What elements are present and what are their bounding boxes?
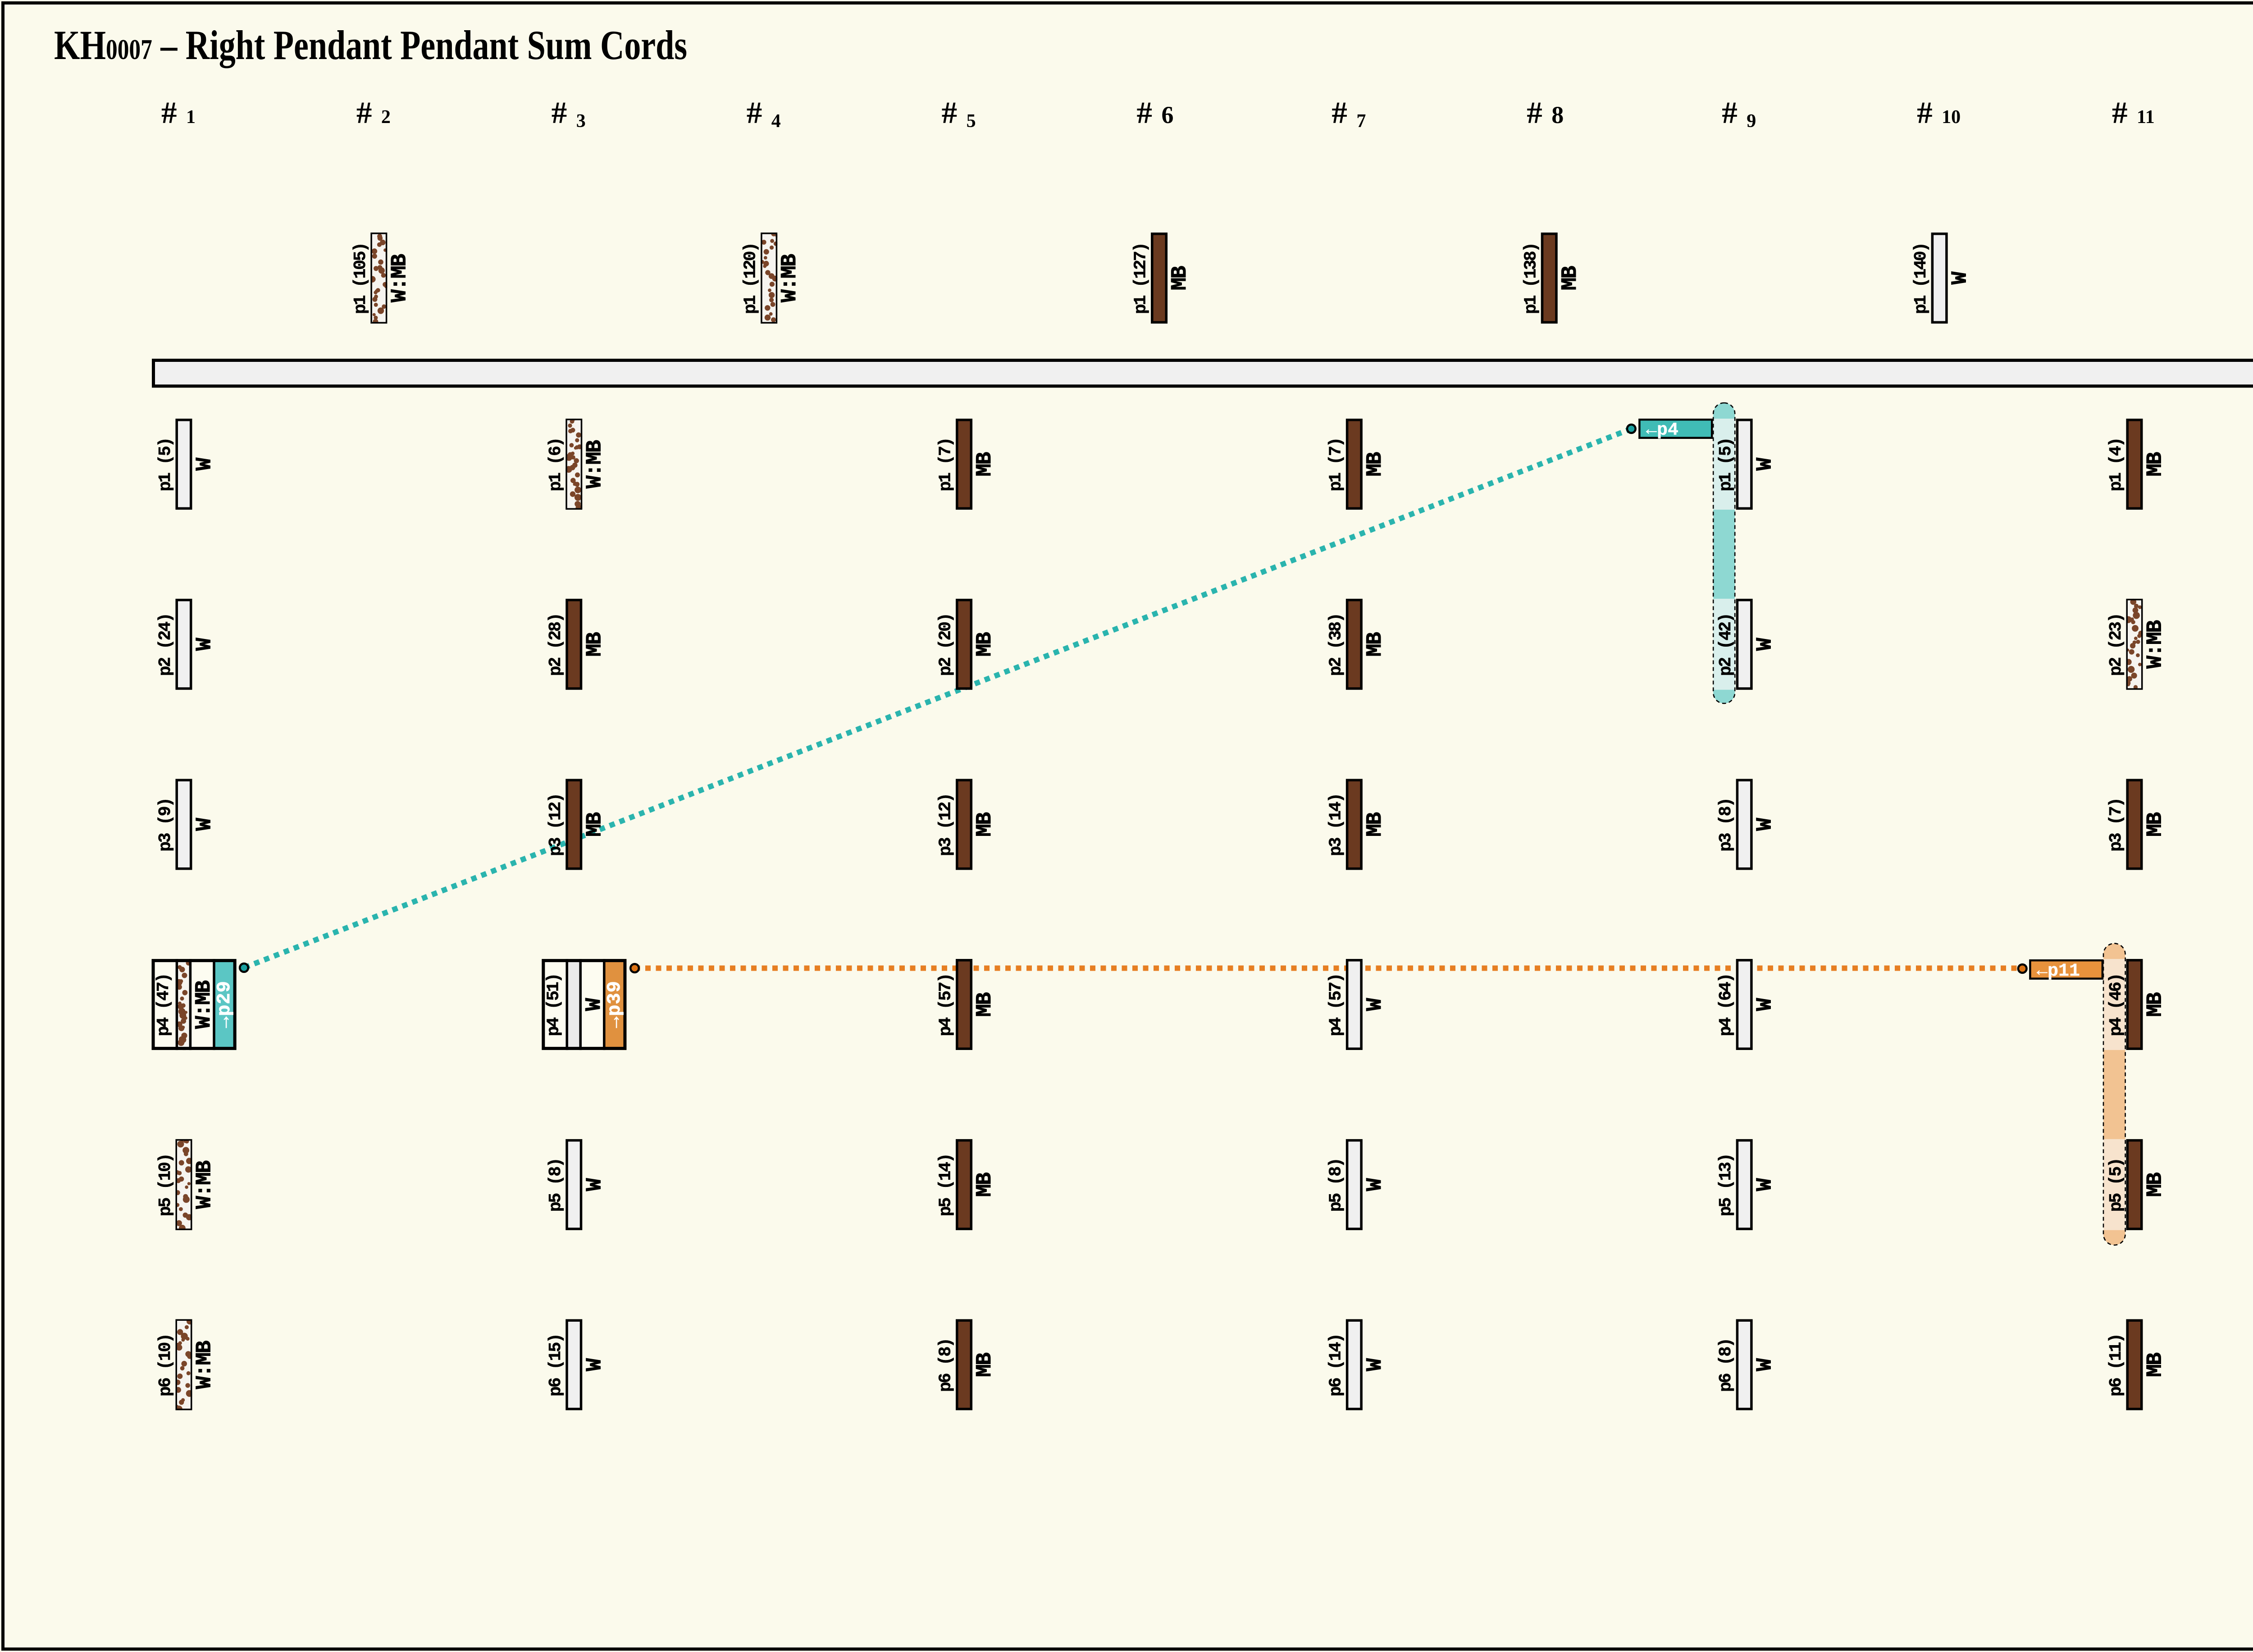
svg-text:p5 (13): p5 (13) <box>1716 1153 1736 1216</box>
svg-text:p5 (14): p5 (14) <box>936 1153 956 1216</box>
svg-text:3: 3 <box>576 111 586 132</box>
svg-text:W:MB: W:MB <box>193 1341 217 1389</box>
svg-text:5: 5 <box>967 111 976 132</box>
svg-text:#: # <box>1137 96 1153 130</box>
svg-text:p4 (47): p4 (47) <box>154 973 173 1036</box>
svg-text:W:MB: W:MB <box>192 980 216 1029</box>
svg-text:MB: MB <box>973 992 997 1017</box>
svg-text:MB: MB <box>583 632 607 657</box>
svg-text:MB: MB <box>2144 1352 2168 1377</box>
svg-text:MB: MB <box>2144 992 2168 1017</box>
svg-text:p2 (23): p2 (23) <box>2107 612 2126 676</box>
svg-text:p3 (12): p3 (12) <box>936 793 956 856</box>
svg-text:W: W <box>1363 1358 1387 1371</box>
svg-text:9: 9 <box>1747 111 1756 132</box>
svg-text:MB: MB <box>973 1172 997 1197</box>
svg-text:p4 (51): p4 (51) <box>544 973 564 1036</box>
svg-text:←p4: ←p4 <box>1646 420 1678 441</box>
svg-text:W: W <box>582 998 607 1011</box>
svg-text:p2 (38): p2 (38) <box>1326 612 1345 676</box>
svg-text:MB: MB <box>1363 452 1387 477</box>
svg-text:MB: MB <box>2144 812 2168 837</box>
svg-text:p4 (46): p4 (46) <box>2107 973 2126 1036</box>
svg-text:p1 (5): p1 (5) <box>156 437 175 492</box>
svg-text:W: W <box>1363 998 1387 1011</box>
svg-text:7: 7 <box>1356 111 1366 132</box>
svg-text:p3 (14): p3 (14) <box>1326 793 1345 856</box>
svg-text:p1 (7): p1 (7) <box>936 437 956 492</box>
svg-text:W: W <box>1948 271 1973 284</box>
svg-text:p1 (7): p1 (7) <box>1326 437 1345 492</box>
svg-text:#: # <box>747 96 762 130</box>
svg-text:MB: MB <box>1363 632 1387 657</box>
svg-text:p5 (8): p5 (8) <box>1326 1157 1345 1212</box>
svg-text:p6 (14): p6 (14) <box>1326 1333 1345 1396</box>
svg-text:#: # <box>2112 96 2128 130</box>
svg-text:p6 (8): p6 (8) <box>936 1337 956 1392</box>
svg-text:p4 (57): p4 (57) <box>1326 973 1345 1036</box>
svg-text:W: W <box>193 457 217 470</box>
svg-text:p5 (5): p5 (5) <box>2107 1157 2126 1212</box>
svg-text:11: 11 <box>2137 107 2155 128</box>
svg-text:W:MB: W:MB <box>193 1160 217 1209</box>
svg-text:p6 (11): p6 (11) <box>2107 1333 2126 1396</box>
svg-text:MB: MB <box>1558 266 1583 291</box>
svg-text:p3 (12): p3 (12) <box>546 793 566 856</box>
svg-text:p1 (140): p1 (140) <box>1911 242 1931 314</box>
svg-text:→p29: →p29 <box>214 981 235 1028</box>
svg-text:p2 (24): p2 (24) <box>156 612 175 676</box>
svg-text:W: W <box>1753 457 1778 470</box>
svg-text:p4 (57): p4 (57) <box>936 973 956 1036</box>
svg-text:p2 (20): p2 (20) <box>936 612 956 676</box>
svg-text:W: W <box>583 1358 607 1371</box>
svg-text:W: W <box>583 1178 607 1191</box>
svg-text:p4 (64): p4 (64) <box>1716 973 1736 1036</box>
svg-text:←p11: ←p11 <box>2037 961 2080 981</box>
svg-text:8: 8 <box>1551 101 1564 128</box>
svg-text:MB: MB <box>583 812 607 837</box>
svg-text:MB: MB <box>973 1352 997 1377</box>
svg-text:#: # <box>1527 96 1542 130</box>
svg-text:W:MB: W:MB <box>583 440 607 488</box>
svg-text:2: 2 <box>381 107 391 128</box>
svg-text:W: W <box>193 638 217 651</box>
svg-text:MB: MB <box>973 632 997 657</box>
svg-text:MB: MB <box>973 812 997 837</box>
svg-text:MB: MB <box>1168 266 1192 291</box>
svg-text:p5 (8): p5 (8) <box>546 1157 566 1212</box>
svg-text:p3 (7): p3 (7) <box>2107 797 2126 852</box>
svg-text:p1 (138): p1 (138) <box>1521 242 1541 314</box>
svg-text:p1 (105): p1 (105) <box>351 242 370 314</box>
svg-text:p1 (4): p1 (4) <box>2107 437 2126 492</box>
svg-text:p6 (10): p6 (10) <box>156 1333 175 1396</box>
svg-text:MB: MB <box>1363 812 1387 837</box>
svg-text:p2 (42): p2 (42) <box>1716 612 1736 676</box>
svg-text:→p39: →p39 <box>604 981 625 1028</box>
svg-text:p6 (15): p6 (15) <box>546 1333 566 1396</box>
svg-text:#: # <box>1722 96 1738 130</box>
svg-text:p1 (127): p1 (127) <box>1131 242 1151 314</box>
svg-text:4: 4 <box>771 111 781 132</box>
svg-text:#: # <box>356 96 372 130</box>
svg-text:#: # <box>1917 96 1933 130</box>
svg-text:1: 1 <box>186 107 196 128</box>
svg-text:#: # <box>1332 96 1347 130</box>
svg-text:p2 (28): p2 (28) <box>546 612 566 676</box>
svg-text:#: # <box>552 96 567 130</box>
svg-text:W: W <box>193 818 217 831</box>
svg-text:p1 (120): p1 (120) <box>741 242 761 314</box>
svg-text:W: W <box>1753 1358 1778 1371</box>
svg-text:p6 (8): p6 (8) <box>1716 1337 1736 1392</box>
svg-text:6: 6 <box>1162 101 1174 128</box>
svg-text:#: # <box>161 96 177 130</box>
svg-text:W:MB: W:MB <box>388 254 412 302</box>
svg-text:p5 (10): p5 (10) <box>156 1153 175 1216</box>
svg-text:W: W <box>1753 638 1778 651</box>
svg-text:W: W <box>1753 1178 1778 1191</box>
svg-text:W: W <box>1753 818 1778 831</box>
svg-text:W: W <box>1363 1178 1387 1191</box>
svg-text:MB: MB <box>2144 1172 2168 1197</box>
svg-text:MB: MB <box>2144 452 2168 477</box>
svg-text:W: W <box>1753 998 1778 1011</box>
svg-text:p3 (9): p3 (9) <box>156 797 175 852</box>
svg-text:MB: MB <box>973 452 997 477</box>
svg-text:p1 (6): p1 (6) <box>546 437 566 492</box>
svg-text:p3 (8): p3 (8) <box>1716 797 1736 852</box>
svg-text:W:MB: W:MB <box>2144 620 2168 669</box>
svg-text:W:MB: W:MB <box>778 254 802 302</box>
svg-text:10: 10 <box>1942 107 1961 128</box>
svg-text:p1 (5): p1 (5) <box>1716 437 1736 492</box>
svg-text:#: # <box>942 96 958 130</box>
